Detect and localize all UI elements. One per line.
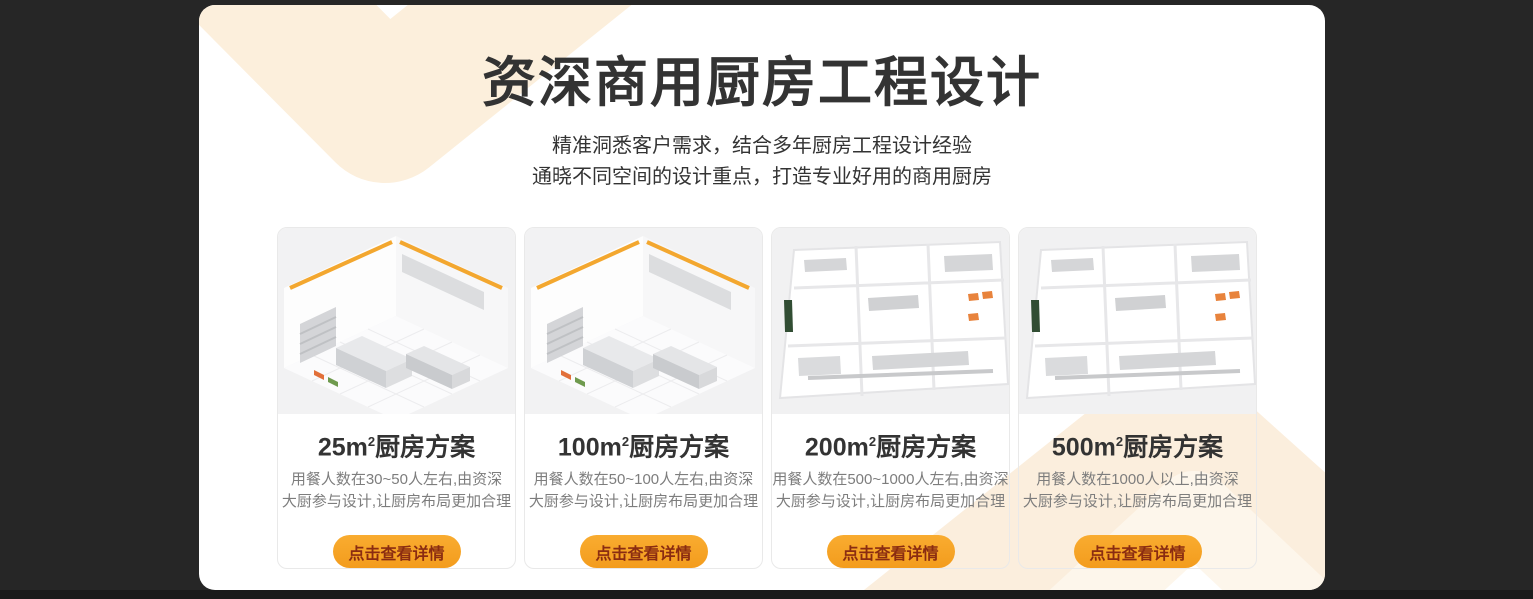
bottom-bar xyxy=(0,590,1533,599)
kitchen-render-image xyxy=(772,228,1009,414)
card-title: 200m2厨房方案 xyxy=(805,427,976,462)
card-description: 用餐人数在50~100人左右,由资深大厨参与设计,让厨房布局更加合理 xyxy=(529,469,758,513)
view-details-button[interactable]: 点击查看详情 xyxy=(1074,535,1202,568)
kitchen-plan-card-25m2: 25m2厨房方案 用餐人数在30~50人左右,由资深大厨参与设计,让厨房布局更加… xyxy=(277,227,516,569)
kitchen-plan-cards: 25m2厨房方案 用餐人数在30~50人左右,由资深大厨参与设计,让厨房布局更加… xyxy=(277,227,1257,565)
content-panel: 资深商用厨房工程设计 精准洞悉客户需求，结合多年厨房工程设计经验 通晓不同空间的… xyxy=(199,5,1325,590)
kitchen-plan-card-500m2: 500m2厨房方案 用餐人数在1000人以上,由资深大厨参与设计,让厨房布局更加… xyxy=(1018,227,1257,569)
card-title: 100m2厨房方案 xyxy=(558,427,729,462)
card-title: 25m2厨房方案 xyxy=(318,427,475,462)
card-description: 用餐人数在500~1000人左右,由资深大厨参与设计,让厨房布局更加合理 xyxy=(772,469,1008,513)
page: 资深商用厨房工程设计 精准洞悉客户需求，结合多年厨房工程设计经验 通晓不同空间的… xyxy=(0,0,1533,599)
kitchen-render-image xyxy=(525,228,762,414)
section-subtitle-line2: 通晓不同空间的设计重点，打造专业好用的商用厨房 xyxy=(199,162,1325,193)
kitchen-render-image xyxy=(1019,228,1256,414)
card-title: 500m2厨房方案 xyxy=(1052,427,1223,462)
kitchen-plan-card-200m2: 200m2厨房方案 用餐人数在500~1000人左右,由资深大厨参与设计,让厨房… xyxy=(771,227,1010,569)
view-details-button[interactable]: 点击查看详情 xyxy=(333,535,461,568)
card-description: 用餐人数在1000人以上,由资深大厨参与设计,让厨房布局更加合理 xyxy=(1023,469,1252,513)
view-details-button[interactable]: 点击查看详情 xyxy=(580,535,708,568)
kitchen-render-image xyxy=(278,228,515,414)
section-subtitle-line1: 精准洞悉客户需求，结合多年厨房工程设计经验 xyxy=(199,131,1325,162)
section-header: 资深商用厨房工程设计 精准洞悉客户需求，结合多年厨房工程设计经验 通晓不同空间的… xyxy=(199,53,1325,193)
kitchen-plan-card-100m2: 100m2厨房方案 用餐人数在50~100人左右,由资深大厨参与设计,让厨房布局… xyxy=(524,227,763,569)
view-details-button[interactable]: 点击查看详情 xyxy=(827,535,955,568)
page-title: 资深商用厨房工程设计 xyxy=(199,53,1325,113)
card-description: 用餐人数在30~50人左右,由资深大厨参与设计,让厨房布局更加合理 xyxy=(282,469,511,513)
